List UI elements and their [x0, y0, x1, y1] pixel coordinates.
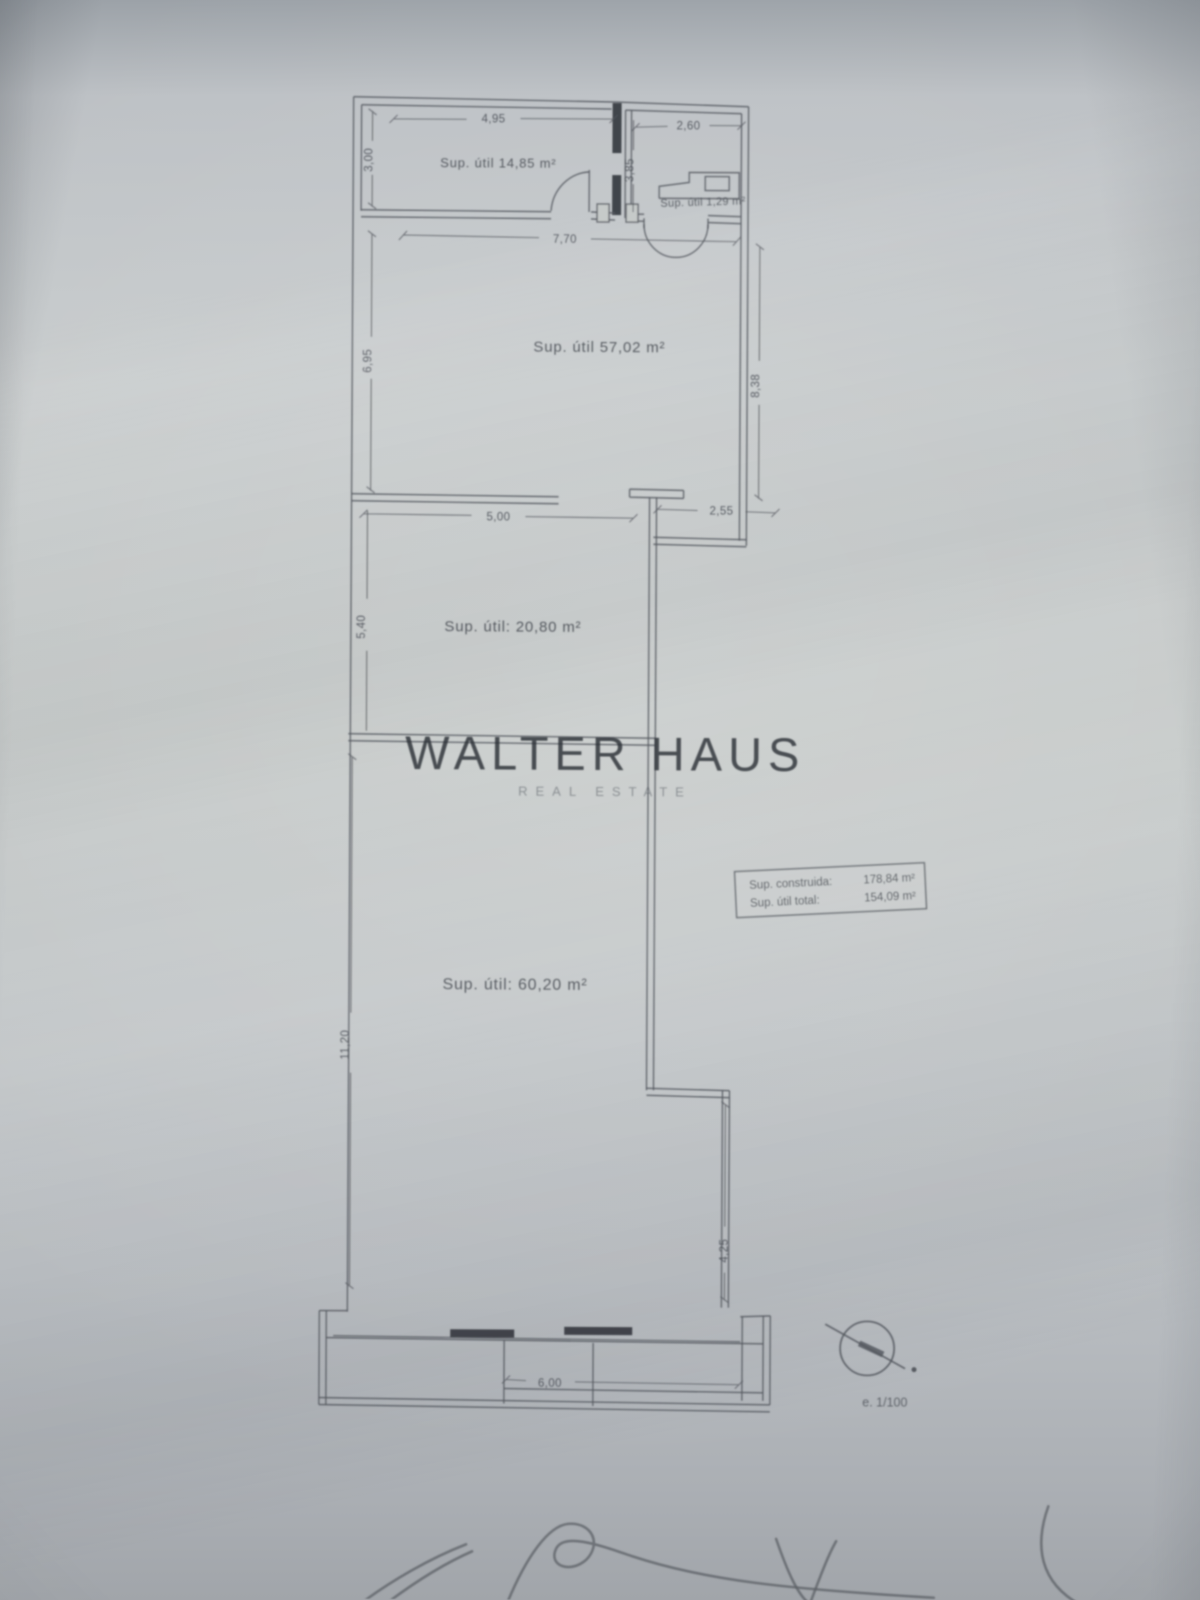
dimension-labels: 4,95 3,00 2,60 3,85 7,70 6,95 8,38 5,00 …	[338, 113, 764, 1391]
dim-6-95: 6,95	[362, 349, 374, 373]
sink-basin	[705, 177, 729, 191]
room-label-bottom: Sup. útil: 60,20 m²	[442, 976, 587, 994]
sliding-door-panel	[450, 1329, 514, 1337]
dim-3-00: 3,00	[363, 148, 375, 172]
dim-11-20: 11,20	[340, 1030, 352, 1060]
dim-5-00: 5,00	[486, 511, 510, 523]
room-labels: Sup. útil 14,85 m² Sup. útil 1,29 m² Sup…	[436, 155, 746, 995]
dim-3-85: 3,85	[624, 158, 636, 182]
room-bottom-walls	[333, 1087, 741, 1342]
room-middle-walls	[346, 496, 656, 1091]
dim-7-70: 7,70	[553, 234, 577, 246]
north-compass-icon	[825, 1321, 917, 1375]
room-label-wc: Sup. útil 1,29 m²	[660, 195, 746, 210]
room-top-right-walls	[595, 102, 748, 546]
room-label-top-left: Sup. útil 14,85 m²	[440, 155, 556, 171]
scale-label: e. 1/100	[862, 1395, 907, 1409]
summary-row2-value: 154,09 m²	[864, 890, 916, 904]
dimension-lines	[345, 109, 782, 1389]
summary-box: Sup. construida: 178,84 m² Sup. útil tot…	[735, 863, 927, 918]
room-top-left-walls	[347, 97, 621, 1313]
dim-4-25: 4,25	[719, 1239, 731, 1263]
dim-5-40: 5,40	[356, 615, 368, 639]
room-label-middle: Sup. útil: 20,80 m²	[444, 618, 581, 636]
photographed-floor-plan-page: 4,95 3,00 2,60 3,85 7,70 6,95 8,38 5,00 …	[0, 0, 1200, 1600]
dim-4-95: 4,95	[482, 113, 506, 125]
summary-row1-value: 178,84 m²	[863, 872, 915, 886]
dim-2-60: 2,60	[677, 120, 701, 132]
room-label-main: Sup. útil 57,02 m²	[533, 339, 665, 357]
room-main-walls	[351, 217, 748, 547]
dim-8-38: 8,38	[750, 374, 762, 398]
terrace-walls	[319, 1311, 771, 1412]
signature-handwriting	[366, 1503, 1081, 1600]
floor-plan-content: 4,95 3,00 2,60 3,85 7,70 6,95 8,38 5,00 …	[0, 0, 1200, 1600]
dim-6-00: 6,00	[538, 1378, 562, 1390]
sliding-door-panel	[564, 1327, 632, 1335]
dim-2-55: 2,55	[709, 506, 733, 518]
floor-plan-drawing: 4,95 3,00 2,60 3,85 7,70 6,95 8,38 5,00 …	[0, 0, 1200, 1600]
